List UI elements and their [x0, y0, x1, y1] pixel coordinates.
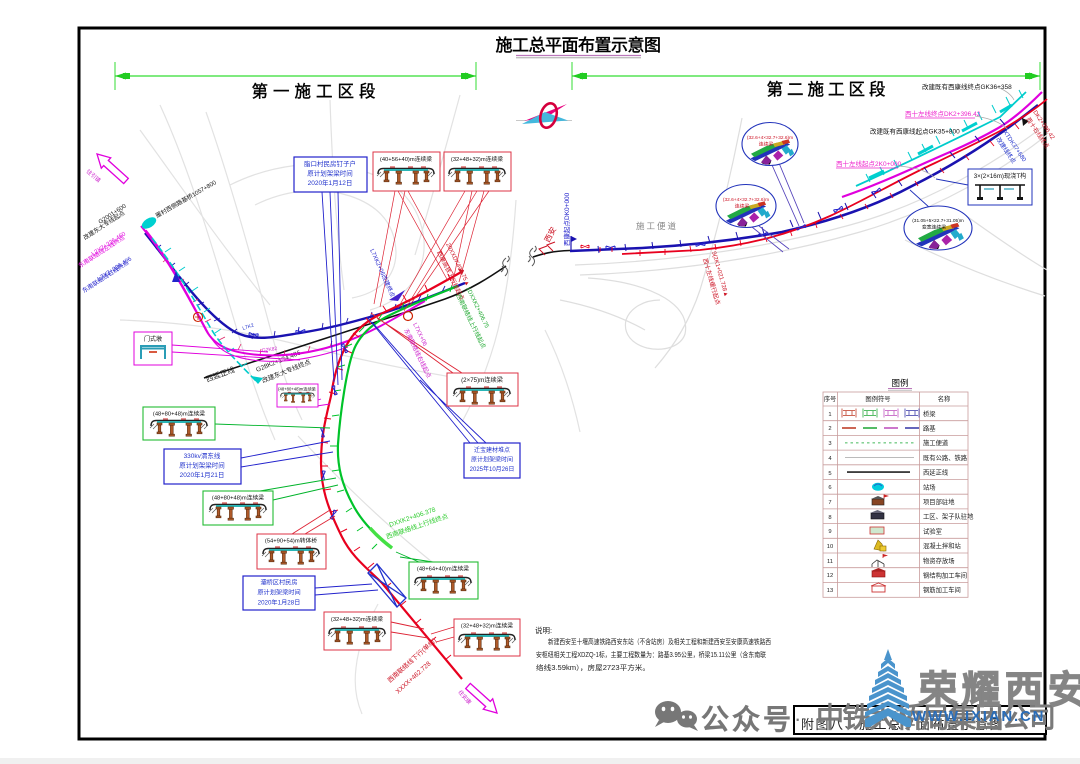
svg-text:门式墩: 门式墩: [144, 335, 162, 343]
svg-text:物资存放场: 物资存放场: [923, 556, 954, 565]
svg-text:图例: 图例: [891, 378, 908, 388]
svg-text:迁宝建材堆点: 迁宝建材堆点: [474, 446, 510, 454]
svg-text:桥梁: 桥梁: [923, 409, 936, 418]
svg-text:项目部驻地: 项目部驻地: [923, 497, 955, 506]
svg-text:2: 2: [828, 426, 831, 432]
svg-text:(32+48+32)m连续梁: (32+48+32)m连续梁: [461, 622, 513, 630]
svg-text:12: 12: [827, 573, 833, 579]
svg-text:(40+56+40)m连续梁: (40+56+40)m连续梁: [380, 155, 432, 163]
svg-text:2020年1月28日: 2020年1月28日: [258, 599, 301, 607]
svg-text:(2×75)m连续梁: (2×75)m连续梁: [461, 376, 503, 384]
svg-text:第二施工区段: 第二施工区段: [767, 80, 890, 99]
svg-text:(32+48+32)m连续梁: (32+48+32)m连续梁: [331, 615, 383, 623]
svg-text:路基: 路基: [923, 424, 936, 433]
svg-text:西十左线起点2K0+000: 西十左线起点2K0+000: [836, 159, 902, 168]
svg-text:既有公路、铁路: 既有公路、铁路: [923, 453, 968, 462]
svg-text:11: 11: [827, 559, 833, 565]
svg-text:荣耀西安: 荣耀西安: [919, 670, 1080, 712]
svg-text:站场: 站场: [923, 482, 936, 491]
svg-text:施工便道: 施工便道: [636, 221, 678, 231]
svg-text:说明:: 说明:: [535, 625, 552, 635]
svg-text:施工便道: 施工便道: [923, 438, 949, 447]
svg-text:原计划架梁时间: 原计划架梁时间: [179, 461, 225, 470]
svg-text:安枢纽相关工程XDZQ-1标，主要工程数量为：路基3.95公: 安枢纽相关工程XDZQ-1标，主要工程数量为：路基3.95公里，桥梁15.11公…: [536, 650, 766, 659]
svg-text:西康起点DK0+000: 西康起点DK0+000: [562, 192, 571, 246]
svg-text:原计划架梁时间: 原计划架梁时间: [257, 589, 300, 597]
svg-text:13: 13: [827, 588, 833, 594]
svg-text:(48+80+48)m连续梁: (48+80+48)m连续梁: [212, 494, 264, 502]
svg-text:330kv渭东线: 330kv渭东线: [184, 451, 221, 460]
svg-text:(48+64+40)m连续梁: (48+64+40)m连续梁: [417, 565, 469, 573]
svg-text:试验室: 试验室: [923, 526, 942, 535]
svg-text:3: 3: [828, 441, 831, 447]
svg-text:新建西安至十堰高速铁路西安东站（不含站房）及相关工程和新建西: 新建西安至十堰高速铁路西安东站（不含站房）及相关工程和新建西安至安康高速铁路西: [548, 637, 771, 646]
svg-text:3×(2×16m)现浇T构: 3×(2×16m)现浇T构: [974, 172, 1027, 180]
svg-text:第一施工区段: 第一施工区段: [252, 82, 381, 101]
svg-text:钢筋加工车间: 钢筋加工车间: [923, 585, 961, 594]
svg-text:6: 6: [828, 485, 831, 491]
svg-text:改建既有西康线起点GK35+800: 改建既有西康线起点GK35+800: [870, 127, 960, 136]
svg-text:2020年1月12日: 2020年1月12日: [308, 178, 353, 187]
svg-text:(32.6+4×32.7+32.6)m: (32.6+4×32.7+32.6)m: [747, 135, 793, 141]
svg-text:灞桥区村民房: 灞桥区村民房: [260, 579, 297, 587]
svg-text:(48+80+48)m连续梁: (48+80+48)m连续梁: [278, 386, 317, 393]
svg-text:名称: 名称: [938, 394, 951, 403]
svg-text:改建既有西康线终点GK36+358: 改建既有西康线终点GK36+358: [922, 82, 1012, 91]
svg-text:混凝土拌和站: 混凝土拌和站: [923, 541, 961, 550]
svg-text:公众号: 公众号: [701, 704, 794, 735]
svg-text:原计划架梁时间: 原计划架梁时间: [471, 456, 513, 464]
svg-text:9: 9: [828, 529, 831, 535]
svg-text:(32+48+32)m连续梁: (32+48+32)m连续梁: [451, 155, 503, 163]
svg-text:2025年10月26日: 2025年10月26日: [470, 465, 515, 473]
svg-text:西十左线终点DK2+396.42: 西十左线终点DK2+396.42: [905, 109, 981, 118]
svg-text:7: 7: [828, 500, 831, 506]
svg-text:·: ·: [794, 706, 801, 731]
svg-text:工区、架子队驻地: 工区、架子队驻地: [923, 512, 974, 521]
svg-text:施工总平面布置示意图: 施工总平面布置示意图: [496, 36, 661, 55]
svg-text:(32.6+4×32.7+32.6)m: (32.6+4×32.7+32.6)m: [723, 197, 769, 203]
svg-text:(54+90+54)m转体桥: (54+90+54)m转体桥: [265, 537, 317, 545]
svg-text:5: 5: [828, 471, 831, 477]
svg-text:西延正线: 西延正线: [923, 468, 949, 477]
svg-text:10: 10: [827, 544, 833, 550]
svg-text:络线3.59km），房屋2723平方米。: 络线3.59km），房屋2723平方米。: [536, 663, 650, 672]
svg-text:1: 1: [828, 412, 831, 418]
svg-text:(48+80+48)m连续梁: (48+80+48)m连续梁: [153, 410, 205, 418]
svg-text:图例符号: 图例符号: [865, 394, 890, 403]
svg-text:WWW.IXIAN.CN: WWW.IXIAN.CN: [912, 708, 1045, 725]
svg-text:原计划架梁时间: 原计划架梁时间: [307, 169, 353, 178]
svg-text:2020年1月21日: 2020年1月21日: [180, 470, 225, 479]
svg-text:(31.05+5×22.7+31.05)m: (31.05+5×22.7+31.05)m: [912, 218, 964, 224]
svg-text:变宽连续梁: 变宽连续梁: [922, 224, 946, 231]
svg-text:序号: 序号: [824, 394, 837, 403]
svg-text:脂口村民房钉子户: 脂口村民房钉子户: [304, 159, 356, 168]
svg-text:连续梁: 连续梁: [759, 141, 774, 148]
svg-text:钢结构加工车间: 钢结构加工车间: [923, 571, 967, 580]
svg-text:8: 8: [828, 515, 831, 521]
svg-text:连续梁: 连续梁: [735, 203, 750, 210]
